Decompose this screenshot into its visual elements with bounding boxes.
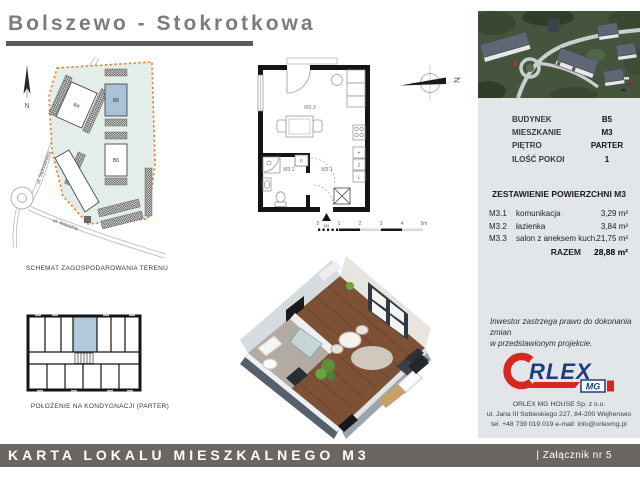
area-code: M3.3 bbox=[489, 234, 507, 243]
spec-label: PIĘTRO bbox=[512, 141, 542, 150]
site-compass-icon: N bbox=[24, 66, 31, 110]
floor-location-caption: POŁOŻENIE NA KONDYGNACJI (PARTER) bbox=[20, 403, 180, 410]
orlex-logo-badge: MG bbox=[586, 382, 601, 392]
washing-machine: P bbox=[295, 155, 308, 166]
spec-row-pietro: PIĘTRO PARTER bbox=[512, 141, 636, 152]
spec-row-mieszkanie: MIESZKANIE M3 bbox=[512, 128, 636, 139]
area-total-label: RAZEM bbox=[551, 247, 581, 257]
spec-value: M3 bbox=[578, 128, 636, 137]
appliance-plus-label: + bbox=[358, 151, 361, 157]
footer-attachment: | Załącznik nr 5 bbox=[536, 450, 612, 461]
area-code: M3.2 bbox=[489, 222, 507, 231]
page-title: Bolszewo - Stokrotkowa bbox=[8, 12, 316, 36]
room-m32-label: M3.2 bbox=[283, 167, 295, 173]
area-name: komunikacja bbox=[516, 209, 560, 218]
room-m33-label: M3.3 bbox=[304, 105, 316, 111]
spec-row-budynek: BUDYNEK B5 bbox=[512, 115, 636, 126]
info-panel: BUDYNEK B5 MIESZKANIE M3 PIĘTRO PARTER I… bbox=[478, 98, 640, 438]
window bbox=[258, 75, 263, 111]
entrance-marker: M3 bbox=[322, 213, 331, 228]
site-plan-caption: SCHEMAT ZAGOSPODAROWANIA TERENU bbox=[8, 265, 186, 272]
orlex-logo: RLEX MG bbox=[502, 352, 616, 396]
spec-value: B5 bbox=[578, 115, 636, 124]
side-table bbox=[332, 75, 343, 86]
door-swings bbox=[310, 158, 335, 205]
roundabout-center bbox=[526, 64, 534, 72]
balcony-door bbox=[287, 70, 310, 93]
svg-text:4: 4 bbox=[401, 221, 404, 227]
area-code: M3.1 bbox=[489, 209, 507, 218]
svg-text:2: 2 bbox=[359, 221, 362, 227]
spec-value: PARTER bbox=[578, 141, 636, 150]
svg-text:5m: 5m bbox=[421, 221, 428, 227]
shaft-box bbox=[334, 188, 350, 204]
svg-text:1: 1 bbox=[338, 221, 341, 227]
toilet bbox=[275, 192, 286, 207]
sofa bbox=[347, 70, 365, 107]
area-value: 3,84 m² bbox=[601, 222, 628, 231]
svg-text:3: 3 bbox=[380, 221, 383, 227]
footer-title: KARTA LOKALU MIESZKALNEGO M3 bbox=[8, 447, 370, 463]
shower bbox=[263, 157, 280, 173]
spec-label: BUDYNEK bbox=[512, 115, 552, 124]
terrace-edge bbox=[287, 58, 337, 64]
area-row: M3.3 salon z aneksem kuch. 21,75 m² bbox=[489, 234, 629, 244]
unit-highlight bbox=[73, 318, 97, 352]
area-total-value: 28,88 m² bbox=[594, 247, 628, 257]
disclaimer-text: Inwestor zastrzega prawo do dokonania zm… bbox=[490, 316, 632, 349]
street-wspolna-label: ul. Wspólna bbox=[52, 218, 79, 233]
washbasin bbox=[263, 178, 271, 191]
street-stokrotkowa-label: ul. Stokrotkowa bbox=[35, 150, 52, 184]
apartment-3d-render bbox=[200, 248, 440, 440]
disclaimer-line1: Inwestor zastrzega prawo do dokonania zm… bbox=[490, 316, 632, 338]
disclaimer-line2: w przedstawionym projekcie. bbox=[490, 338, 632, 349]
north-arrow-icon: N bbox=[400, 65, 461, 101]
building-b5-label: B5 bbox=[113, 98, 119, 104]
area-table-title: ZESTAWIENIE POWIERZCHNI M3 bbox=[478, 189, 640, 199]
rug bbox=[351, 346, 393, 370]
site-compass-n: N bbox=[24, 103, 29, 110]
building-b6-label: B6 bbox=[113, 158, 119, 164]
area-value: 21,75 m² bbox=[596, 234, 628, 243]
round-table bbox=[339, 332, 361, 348]
orlex-logo-swoosh bbox=[507, 357, 531, 386]
site-plan-map: B4 B5 B6 ul. Stokrotkowa ul. Wspólna N bbox=[5, 56, 187, 263]
area-value: 3,29 m² bbox=[601, 209, 628, 218]
toilet-3d bbox=[263, 359, 277, 369]
spec-row-pokoje: ILOŚĆ POKOI 1 bbox=[512, 155, 636, 166]
svg-text:P: P bbox=[300, 159, 303, 164]
unit-floor-plan: + Z L P M3.3 M3.2 M3.1 M3 0 1 2 3 bbox=[253, 57, 463, 242]
company-name: ORLEX MG HOUSE Sp. z o.o. bbox=[478, 401, 640, 408]
appliance-z-label: Z bbox=[358, 163, 361, 168]
svg-text:M3: M3 bbox=[324, 223, 330, 228]
apartment-card-page: { "header": { "title": "Bolszewo - Stokr… bbox=[0, 0, 640, 480]
area-row: M3.1 komunikacja 3,29 m² bbox=[489, 209, 629, 219]
spec-label: ILOŚĆ POKOI bbox=[512, 155, 564, 164]
spec-value: 1 bbox=[578, 155, 636, 164]
stairs bbox=[75, 353, 93, 364]
area-row: M3.2 łazienka 3,84 m² bbox=[489, 222, 629, 232]
floor-location-plan bbox=[25, 312, 145, 398]
table-and-chairs bbox=[277, 116, 322, 137]
spec-label: MIESZKANIE bbox=[512, 128, 561, 137]
area-name: salon z aneksem kuch. bbox=[516, 234, 597, 243]
north-arrow-n: N bbox=[452, 77, 461, 83]
company-address: ul. Jana III Sobieskiego 227, 84-200 Wej… bbox=[478, 411, 640, 418]
room-m31-label: M3.1 bbox=[321, 167, 333, 173]
orlex-logo-underline bbox=[529, 382, 580, 388]
aerial-render-photo bbox=[478, 11, 640, 98]
area-name: łazienka bbox=[516, 222, 545, 231]
footer-bar: KARTA LOKALU MIESZKALNEGO M3 | Załącznik… bbox=[0, 444, 640, 467]
title-underline bbox=[6, 41, 253, 46]
company-contact: tel. +48 739 019 019 e-mail: info@orlexm… bbox=[478, 421, 640, 428]
svg-text:0: 0 bbox=[317, 221, 320, 227]
scale-bar: 0 1 2 3 4 5m bbox=[317, 221, 428, 231]
